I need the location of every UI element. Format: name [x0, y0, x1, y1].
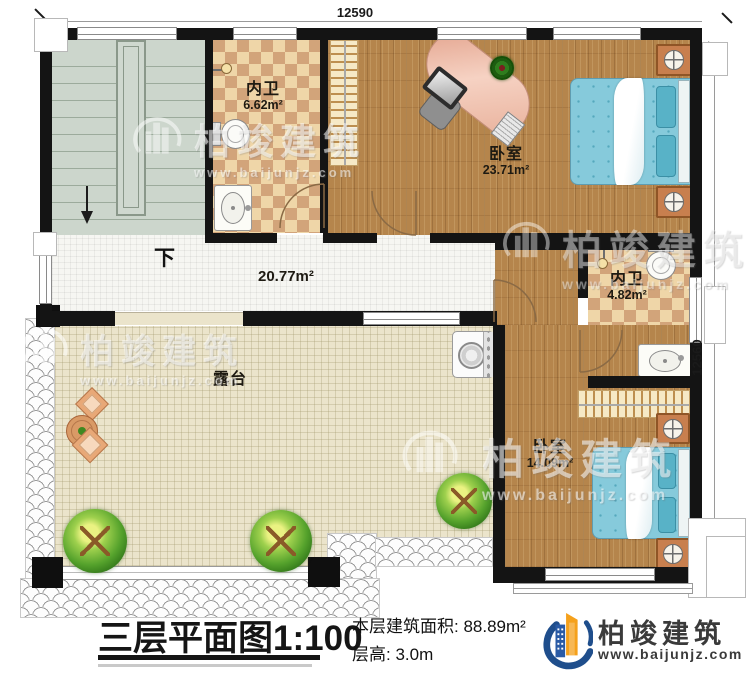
washing-machine: [452, 331, 494, 378]
title-underline-thin: [98, 664, 312, 667]
room-name: 内卫: [222, 82, 304, 99]
terrace-pillar: [308, 557, 340, 587]
nightstand: [656, 538, 690, 569]
sink-icon: [221, 192, 245, 224]
faucet-icon: [245, 205, 251, 211]
tree: [436, 473, 492, 529]
door-arc: [578, 328, 624, 374]
sink-icon: [649, 350, 681, 372]
dimension-line-top: [42, 21, 702, 22]
door-arc: [492, 278, 538, 324]
window: [363, 312, 460, 325]
stair-direction-arrow: [86, 186, 88, 212]
table-lamp-icon: [663, 544, 683, 564]
window: [437, 27, 527, 40]
stair-arrow-head: [81, 211, 93, 224]
room-label-bath1: 内卫 6.62m²: [222, 82, 304, 112]
headboard: [678, 80, 690, 183]
faucet-icon: [678, 355, 684, 361]
stair-railing: [116, 40, 146, 216]
window: [77, 27, 177, 40]
toilet-tank: [212, 122, 221, 146]
room-name: 露台: [200, 372, 260, 389]
plan-title: 三层平面图1:100: [98, 610, 363, 661]
door-arc: [278, 182, 326, 230]
interior-wall: [323, 233, 377, 243]
window: [233, 27, 297, 40]
pillow: [656, 86, 676, 128]
interior-wall: [493, 325, 505, 583]
company-website: www.baijunjz.com: [598, 646, 743, 662]
terrace-pillar: [32, 557, 63, 588]
table-lamp-icon: [664, 192, 684, 212]
pillow: [658, 453, 676, 489]
terrace-opening: [115, 312, 243, 325]
room-label-bedroom2: 卧室 14.09m²: [510, 440, 590, 470]
floor-plan: 内卫 6.62m² 卧室 23.71m² 内卫 4.82m² 卧室 14.09m…: [0, 0, 750, 680]
interior-wall: [430, 233, 502, 243]
window: [553, 27, 641, 40]
extension-line-box: [704, 286, 726, 344]
room-name: 卧室: [510, 440, 590, 457]
wall-lamp-icon: [597, 258, 608, 269]
interior-wall: [588, 376, 702, 388]
hallway-area-label: 20.77m²: [258, 268, 314, 285]
window-sill: [513, 583, 693, 594]
terrace-wall: [40, 311, 115, 326]
plan-scale: 1:100: [273, 619, 363, 658]
floor-height-text: 层高: 3.0m: [352, 640, 433, 665]
window: [39, 250, 52, 304]
interior-wall: [205, 40, 213, 233]
bed: [592, 447, 692, 539]
bed-sheet: [614, 78, 644, 185]
room-label-bedroom1: 卧室 23.71m²: [464, 147, 548, 177]
pillow: [656, 135, 676, 177]
room-name: 卧室: [464, 147, 548, 164]
stair-direction-label: 下: [154, 242, 175, 272]
room-label-bath2: 内卫 4.82m²: [594, 272, 660, 302]
extension-line-box: [34, 18, 68, 52]
toilet-icon: [221, 119, 250, 149]
company-logo-icon: [543, 606, 593, 672]
roof-tile-border-step: [375, 537, 493, 567]
room-area: 4.82m²: [594, 289, 660, 302]
window: [545, 568, 655, 581]
title-underline: [98, 655, 320, 660]
wall-lamp-icon: [221, 63, 232, 74]
wardrobe: [330, 40, 358, 166]
tree: [250, 510, 312, 572]
nightstand: [656, 413, 690, 444]
bed: [570, 78, 692, 185]
room-name: 内卫: [594, 272, 660, 289]
table-lamp-icon: [664, 50, 684, 70]
room-area: 23.71m²: [464, 164, 548, 177]
interior-wall: [578, 250, 588, 298]
nightstand: [656, 44, 692, 76]
bed-sheet: [626, 447, 652, 539]
dimension-top-width: 12590: [300, 5, 410, 20]
room-label-terrace: 露台: [200, 372, 260, 389]
extension-line-box: [33, 232, 57, 256]
desk-plant: [490, 56, 514, 80]
extension-line-box: [706, 536, 746, 598]
interior-wall: [495, 233, 702, 250]
interior-wall: [205, 233, 277, 243]
plan-title-text: 三层平面图: [98, 619, 273, 658]
room-area: 6.62m²: [222, 99, 304, 112]
pillow: [658, 497, 676, 533]
extension-line-box: [702, 42, 728, 76]
tree: [63, 509, 127, 573]
dimension-right-height: 12560: [690, 323, 705, 393]
door-arc: [370, 189, 418, 237]
room-area: 14.09m²: [510, 457, 590, 470]
dimension-tick: [721, 12, 732, 23]
table-lamp-icon: [663, 419, 683, 439]
nightstand: [656, 186, 692, 218]
floor-area-text: 本层建筑面积: 88.89m²: [352, 612, 526, 637]
